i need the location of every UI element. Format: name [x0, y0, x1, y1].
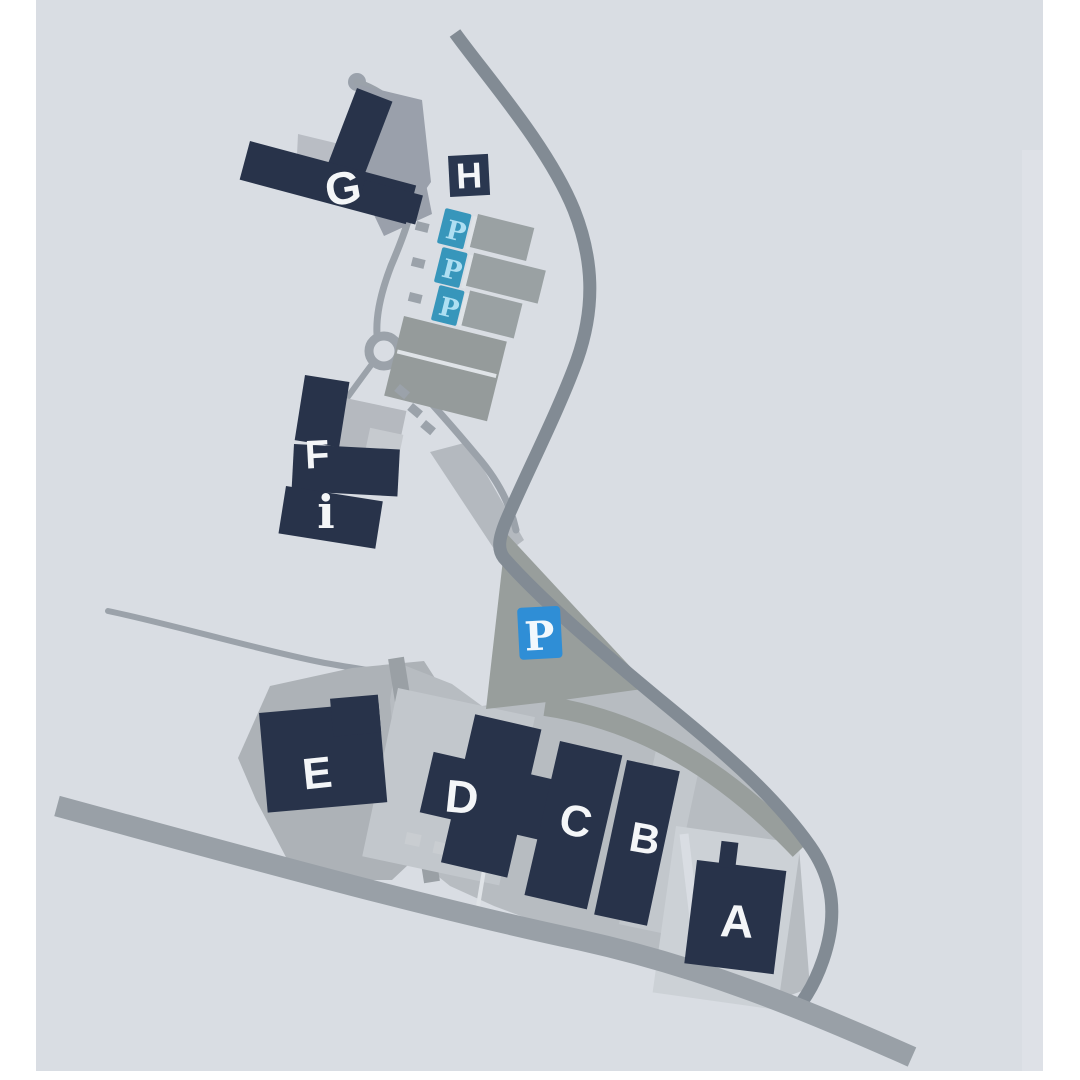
site-map-page: P P P G H	[0, 0, 1080, 1080]
building-f-label: F	[304, 432, 331, 477]
campus-map: P P P G H	[0, 0, 1080, 1080]
building-h-label: H	[455, 154, 483, 196]
parking-badge-large-label: P	[523, 612, 555, 661]
building-a-label: A	[719, 894, 755, 948]
parking-badge-large: P	[517, 606, 563, 661]
building-e-label: E	[300, 748, 334, 800]
h-badge: H	[448, 154, 490, 197]
building-d-label: D	[443, 769, 481, 824]
map-background-band	[1022, 150, 1043, 1071]
info-building-label: i	[317, 485, 334, 539]
